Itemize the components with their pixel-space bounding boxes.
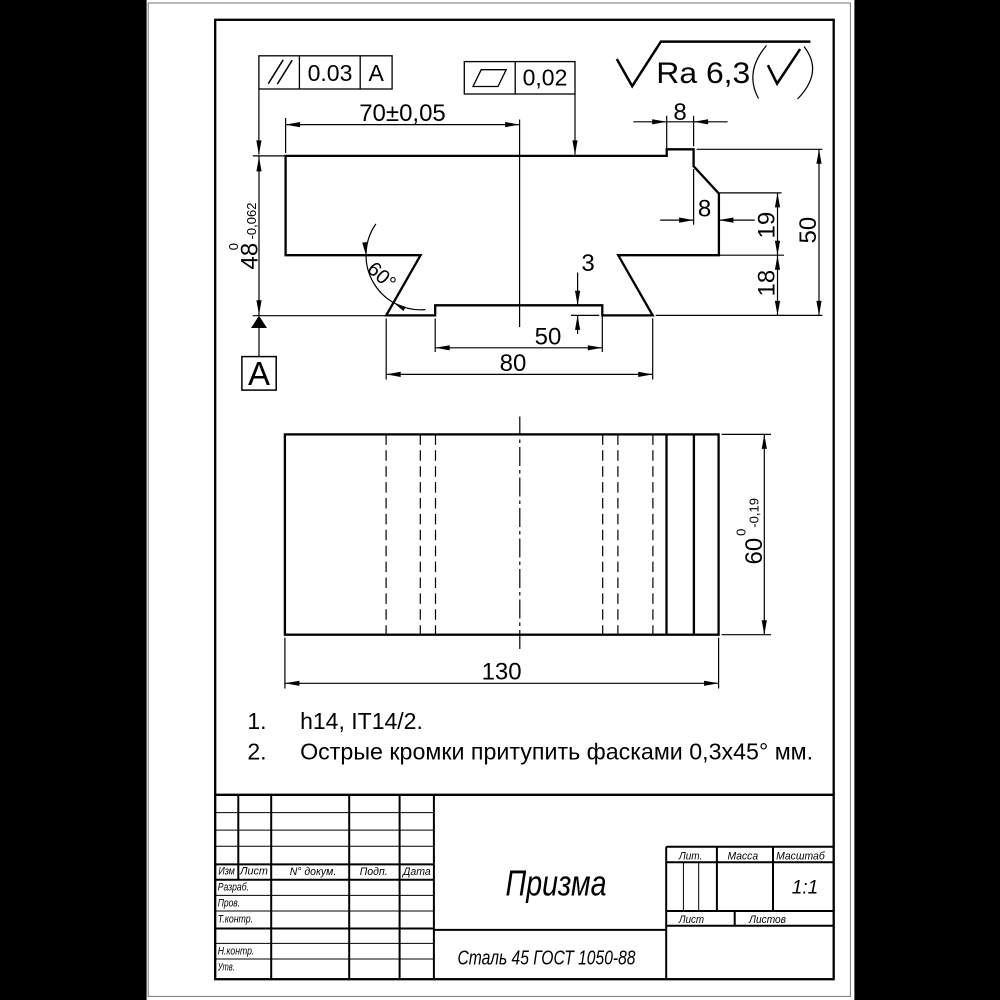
svg-text:18: 18 [753,270,780,297]
svg-text:8: 8 [698,196,711,223]
svg-text:Листов: Листов [748,914,786,926]
svg-text:h14, IT14/2.: h14, IT14/2. [300,708,423,734]
svg-text:1.: 1. [247,708,266,734]
svg-text:Сталь 45 ГОСТ 1050-88: Сталь 45 ГОСТ 1050-88 [458,948,636,970]
svg-text:Т.контр.: Т.контр. [218,914,253,926]
svg-text:50: 50 [535,323,562,350]
svg-text:Масштаб: Масштаб [776,850,825,862]
svg-text:50: 50 [795,217,822,244]
svg-text:19: 19 [753,212,780,239]
svg-text:Острые кромки притупить фаскам: Острые кромки притупить фасками 0,3x45° … [300,738,813,764]
svg-text:Лист: Лист [239,866,268,878]
svg-text:Дата: Дата [401,866,431,878]
svg-text:Масса: Масса [728,850,759,862]
svg-text:0,02: 0,02 [523,65,568,91]
svg-text:Лист: Лист [678,914,704,926]
svg-text:Утв.: Утв. [217,962,235,974]
svg-text:A: A [369,60,385,86]
svg-text:N° докум.: N° докум. [290,866,337,878]
svg-text:Разраб.: Разраб. [218,882,249,894]
svg-text:Н.контр.: Н.контр. [218,946,255,958]
svg-text:Ra 6,3: Ra 6,3 [656,57,750,90]
svg-text:1:1: 1:1 [792,878,818,899]
svg-text:80: 80 [500,350,527,377]
svg-text:8: 8 [673,99,686,126]
svg-text:Призма: Призма [506,863,607,904]
svg-text:Пров.: Пров. [218,897,240,909]
svg-text:Подп.: Подп. [360,866,388,878]
svg-text:3: 3 [581,250,594,277]
svg-text:Изм: Изм [218,866,235,878]
svg-text:2.: 2. [247,738,266,764]
svg-text:Лит.: Лит. [678,850,702,862]
svg-text:0.03: 0.03 [308,60,353,86]
svg-text:130: 130 [482,659,522,686]
svg-text:A: A [248,355,270,392]
svg-text:70±0,05: 70±0,05 [359,100,446,127]
